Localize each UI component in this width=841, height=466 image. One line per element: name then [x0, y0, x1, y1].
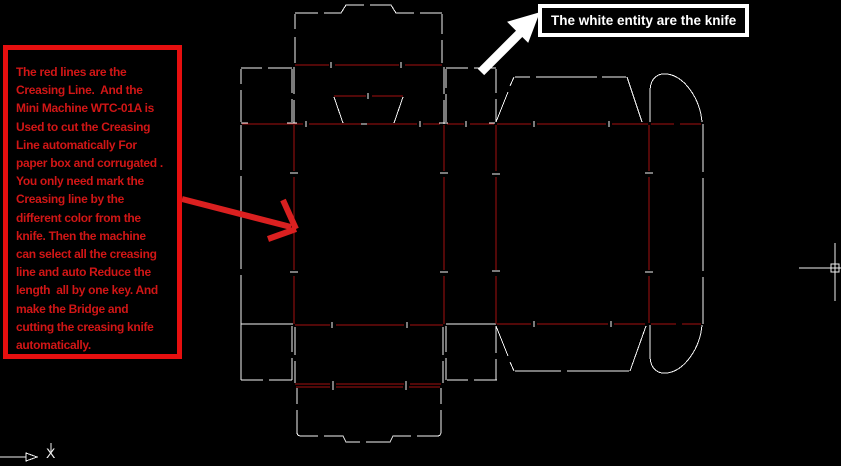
ucs-x-axis-label: X — [46, 445, 55, 461]
knife-annotation-box: The white entity are the knife — [538, 4, 749, 37]
creasing-line-annotation-box: The red lines are the Creasing Line. And… — [3, 45, 182, 359]
cad-viewport: The red lines are the Creasing Line. And… — [0, 0, 841, 466]
crease-lines — [242, 65, 701, 387]
red-callout-arrow — [182, 199, 296, 239]
knife-cut-lines — [241, 5, 703, 442]
ucs-icon — [0, 443, 51, 461]
white-callout-arrow — [481, 13, 539, 72]
crosshair-cursor[interactable] — [799, 243, 841, 301]
creasing-line-annotation-text: The red lines are the Creasing Line. And… — [16, 63, 174, 354]
bridge-ticks — [290, 62, 653, 390]
knife-annotation-text: The white entity are the knife — [551, 13, 736, 28]
